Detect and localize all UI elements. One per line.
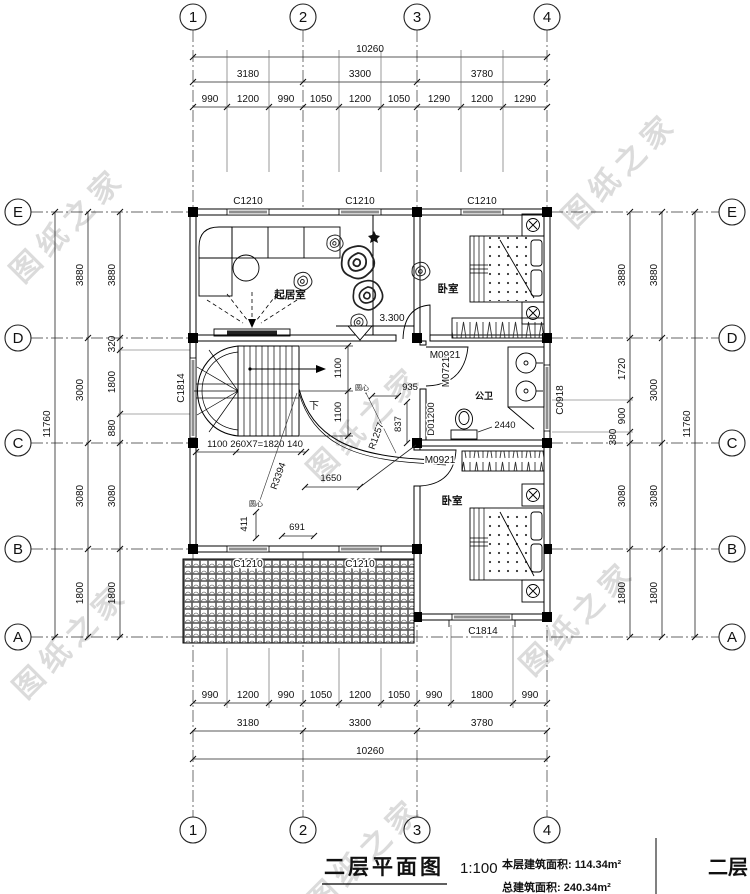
dim-text: 1200 [349,94,372,105]
window-c1210-south-1 [227,546,269,552]
dim-text: 2440 [494,420,515,431]
dim-text: 1100 [333,358,344,378]
window-c1210-south-2 [339,546,381,552]
room-label-bath: 公卫 [475,391,493,401]
grid-bubble-label: 3 [413,9,421,26]
drawing-title: 二层平面图 [324,856,444,879]
grid-bubble-label: E [727,204,737,221]
dim-text: 411 [239,516,250,531]
watermark-text: 图纸之家 [556,106,685,235]
dim-text: 3880 [649,263,660,286]
dim-text: 837 [393,416,404,432]
dim-text: 1200 [471,94,494,105]
room-label-bedroom-bottom: 卧室 [442,494,463,507]
window-c1210-top-1 [227,209,269,215]
window-label: C1814 [468,626,498,637]
dim-text: 1800 [649,581,660,604]
dim-text: 1050 [388,690,411,701]
door-label: M0921 [425,455,456,466]
dim-texts-left: 11760 3880 3000 3080 1800 3880 320 1800 … [42,263,118,604]
grid-bubble-label: C [13,435,24,452]
window-label: C1814 [176,373,187,403]
dim-text: 691 [289,522,305,533]
window-label: C1210 [233,196,263,207]
dim-text: 3080 [617,484,628,507]
window-label: C0918 [555,385,566,415]
dim-text: 3180 [237,718,260,729]
dim-text: D01200 [426,402,437,435]
grid-bubble-label: D [13,330,24,347]
dim-text: 1100 260X7=1820 140 [207,439,303,450]
window-label: C1210 [233,559,263,570]
dim-text: 1050 [388,94,411,105]
floor-plan-sheet: 10260 3180 3300 3780 990 1200 990 1050 1… [0,0,750,894]
window-label: C1210 [345,196,375,207]
center-mark-label: 圆心 [249,500,263,508]
stair-down-label: 下 [309,401,319,412]
dim-text: 1800 [471,690,494,701]
dim-text: 3880 [107,263,118,286]
wardrobe [452,318,544,338]
dim-text: 990 [426,690,443,701]
window-label: C1210 [345,559,375,570]
floor-plan-drawing: 10260 3180 3300 3780 990 1200 990 1050 1… [0,0,750,894]
toilet-tank [451,430,477,439]
area-line-1: 本层建筑面积: 114.34m² [502,857,622,871]
dim-text: 3080 [75,484,86,507]
dim-text: 10260 [356,44,384,55]
dim-text: 3000 [649,378,660,401]
dim-text: 1290 [428,94,451,105]
dim-text: 3180 [237,69,260,80]
grid-bubble-label: 2 [299,822,307,839]
grid-bubble-label: D [727,330,738,347]
window-c0918-right [544,365,550,431]
dim-text: 1050 [310,690,333,701]
dim-text: 990 [202,690,219,701]
dim-text: 3780 [471,718,494,729]
roof-hatch [183,559,414,643]
dim-text: 320 [107,335,118,352]
grid-bubble-label: 1 [189,822,197,839]
grid-bubble-label: 1 [189,9,197,26]
dim-text: 1200 [349,690,372,701]
dim-text: 3080 [107,484,118,507]
panel-label: 二层 [708,857,748,879]
window-c1210-top-3 [461,209,503,215]
dim-text: 990 [278,690,295,701]
room-label-bedroom-top: 卧室 [438,282,459,295]
dim-text: 3880 [617,263,628,286]
grid-bubble-label: C [727,435,738,452]
dim-text: 990 [202,94,219,105]
dim-texts-top: 10260 3180 3300 3780 990 1200 990 1050 1… [202,44,537,105]
dim-text: 990 [278,94,295,105]
dim-text: 1800 [107,370,118,393]
dim-text: 880 [107,419,118,436]
grid-bubble-label: B [727,541,737,558]
dim-text: 3300 [349,69,372,80]
center-mark-label: 圆心 [355,384,369,392]
dim-text: 990 [522,690,539,701]
grid-bubble-label: E [13,204,23,221]
dim-text: 1050 [310,94,333,105]
dim-text: 3000 [75,378,86,401]
door-label: M0721 [441,356,452,387]
room-label-living: 起居室 [273,288,306,301]
window-c1210-top-2 [339,209,381,215]
grid-bubble-label: A [727,629,737,646]
dim-text: 380 [608,428,619,445]
level-value: 3.300 [379,313,404,324]
dim-text: 3080 [649,484,660,507]
dim-texts-bottom: 990 1200 990 1050 1200 1050 990 1800 990… [202,690,539,757]
drawing-scale: 1:100 [460,860,498,877]
dim-text: 3780 [471,69,494,80]
dim-text: 1200 [237,94,260,105]
dim-text: 3880 [75,263,86,286]
wardrobe [462,451,544,471]
grid-bubble-label: 2 [299,9,307,26]
dim-text: 10260 [356,746,384,757]
grid-bubble-label: B [13,541,23,558]
dim-texts-right: 3880 1720 900 380 3080 1800 3880 3000 30… [608,263,693,604]
area-line-2: 总建筑面积: 240.34m² [502,880,611,894]
grid-bubble-label: 4 [543,9,551,26]
dim-text: 900 [617,407,628,424]
dim-text: 1100 [333,402,344,422]
dim-text: 11760 [42,410,53,438]
dim-text: 1290 [514,94,537,105]
dim-text: 1720 [617,357,628,380]
grid-bubble-label: A [13,629,23,646]
dim-text: 1200 [237,690,260,701]
window-c1814-left [190,358,196,438]
dim-text: 3300 [349,718,372,729]
grid-bubble-label: 4 [543,822,551,839]
tv [227,331,277,335]
window-label: C1210 [467,196,497,207]
dim-text: 11760 [682,410,693,438]
dim-text: 1800 [75,581,86,604]
